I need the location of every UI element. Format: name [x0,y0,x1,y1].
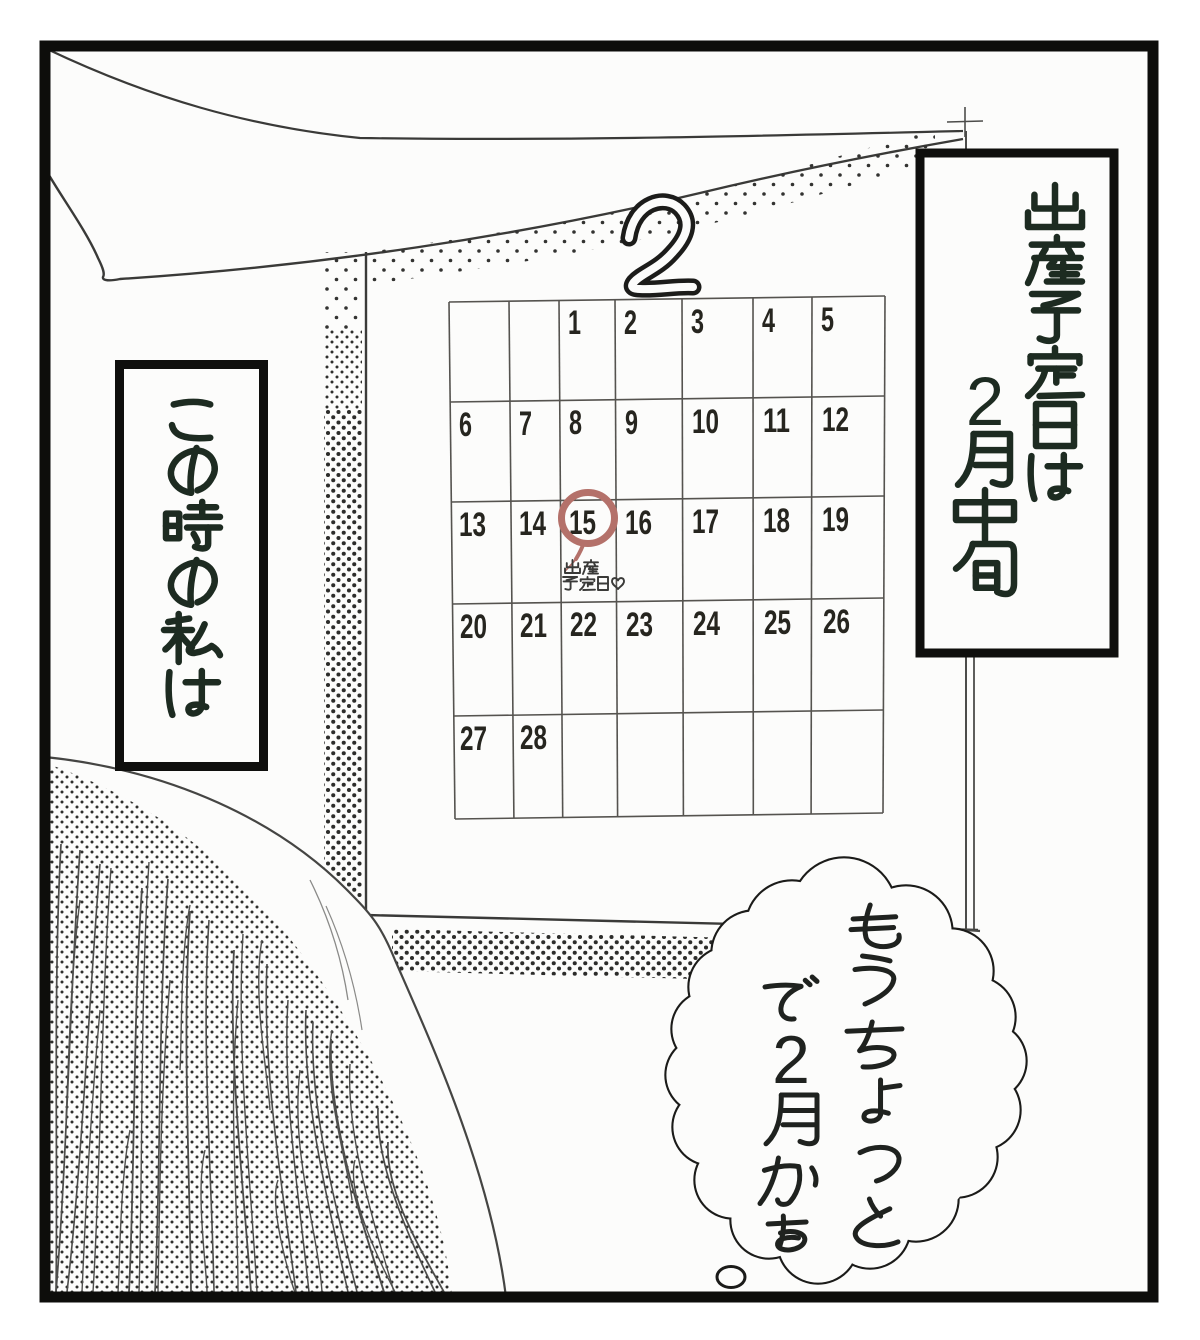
svg-text:13: 13 [459,506,486,544]
svg-text:2: 2 [966,363,1004,440]
svg-text:27: 27 [460,720,487,758]
svg-text:23: 23 [626,606,653,644]
svg-text:19: 19 [822,501,849,539]
svg-text:5: 5 [821,301,834,339]
svg-text:17: 17 [692,503,719,541]
svg-text:24: 24 [693,605,720,643]
svg-text:8: 8 [569,404,582,442]
svg-text:28: 28 [520,719,547,757]
svg-text:20: 20 [460,608,487,646]
svg-text:2: 2 [772,1022,810,1098]
svg-text:21: 21 [520,607,547,645]
svg-text:22: 22 [570,606,597,644]
svg-text:26: 26 [823,603,850,641]
svg-text:4: 4 [762,302,775,340]
svg-text:10: 10 [692,403,719,441]
svg-text:7: 7 [519,405,532,443]
svg-text:2: 2 [624,304,637,342]
svg-text:25: 25 [764,604,791,642]
svg-text:16: 16 [625,504,652,542]
svg-text:11: 11 [763,402,790,440]
svg-text:12: 12 [822,401,849,439]
svg-text:18: 18 [763,502,790,540]
svg-text:14: 14 [519,505,546,543]
svg-text:1: 1 [568,304,581,342]
svg-text:3: 3 [691,303,704,341]
svg-text:9: 9 [625,404,638,442]
svg-text:6: 6 [459,406,472,444]
